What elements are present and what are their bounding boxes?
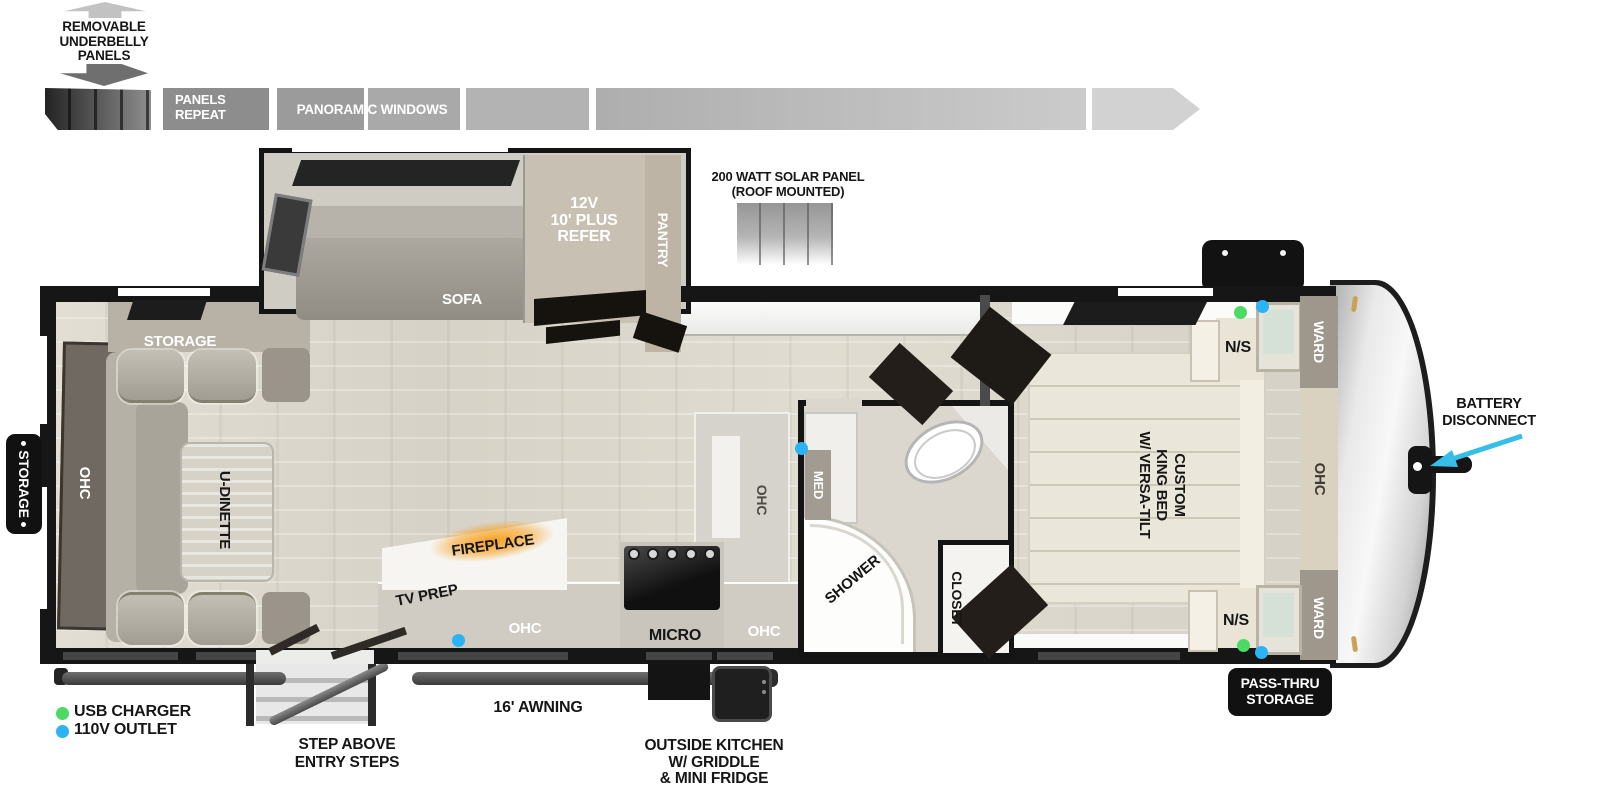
bottom-window-4 (646, 652, 712, 660)
wardrobe-top-glass-pane (1263, 310, 1294, 354)
stove-burner-knobs (628, 548, 716, 560)
sofa-back (300, 206, 535, 242)
arrow-up-icon (64, 2, 146, 18)
battery-disconnect-label: BATTERY DISCONNECT (1434, 396, 1544, 429)
bedroom-top-110v-dot (1256, 300, 1269, 313)
bottom-window-6 (1038, 652, 1180, 660)
legend-usb-dot (56, 707, 69, 720)
bathroom-door-opening (806, 398, 862, 408)
rear-storage-badge-label: STORAGE (16, 444, 32, 524)
dinette-top-window-gap (118, 288, 210, 296)
refrigerator-label: 12V 10' PLUS REFER (523, 196, 645, 246)
bottom-window-3 (398, 652, 568, 660)
bottom-window-1 (63, 652, 178, 660)
dinette-armrest-top (262, 348, 310, 402)
bathroom-110v-outlet-dot (795, 442, 808, 455)
top-wall-front (677, 286, 1336, 302)
propane-cover-dot-right (1280, 250, 1286, 256)
propane-cover (1202, 240, 1304, 292)
legend-110v-dot (56, 725, 69, 738)
bedroom-bottom-usb-dot (1237, 639, 1250, 652)
kitchen-110v-outlet-dot (452, 634, 465, 647)
dinette-cushion-bottom-2 (188, 592, 256, 645)
front-ohc-label: OHC (1311, 449, 1327, 509)
dinette-cushion-bottom-1 (118, 592, 184, 645)
dinette-storage-label: STORAGE (128, 334, 232, 350)
outside-griddle-knob-1 (762, 680, 766, 684)
nightstand-top-label: N/S (1214, 340, 1262, 356)
battery-disconnect-arrow-icon (1420, 428, 1530, 474)
entry-step-rail-left (246, 660, 254, 726)
dinette-cushion-top-1 (118, 350, 184, 403)
nightstand-bottom-label: N/S (1212, 613, 1260, 629)
window-strip-c (466, 88, 589, 130)
dinette-cushion-top-2 (188, 350, 256, 403)
rear-ohc-label: OHC (76, 453, 92, 513)
removable-underbelly-label: REMOVABLE UNDERBELLY PANELS (34, 20, 174, 64)
propane-cover-dot-left (1222, 250, 1228, 256)
dinette-top-valance (127, 300, 207, 320)
rear-window-gap-1 (40, 336, 47, 424)
awning-label: 16' AWNING (478, 700, 598, 716)
kitchen-sink-area (712, 436, 740, 538)
panoramic-windows-label: PANORAMIC WINDOWS (272, 102, 472, 118)
bedroom-bottom-110v-dot (1255, 646, 1268, 659)
rv-floorplan-canvas: REMOVABLE UNDERBELLY PANELS PANELS REPEA… (0, 0, 1600, 788)
solar-panel-label: 200 WATT SOLAR PANEL (ROOF MOUNTED) (698, 170, 878, 199)
sofa-label: SOFA (408, 292, 516, 308)
bedroom-window-valance (1063, 302, 1207, 325)
legend-usb-label: USB CHARGER (74, 704, 214, 720)
king-bed-head-cushion (1240, 360, 1264, 598)
wardrobe-top-label: WARD (1311, 312, 1327, 372)
window-strip-arrow (1092, 88, 1200, 130)
slide-window-valance (292, 160, 520, 186)
slide-window-gap (292, 146, 508, 152)
hall-overhead-cabinets (681, 300, 981, 336)
dinette-label: U-DINETTE (216, 460, 232, 560)
legend-110v-label: 110V OUTLET (74, 722, 214, 738)
pantry-label: PANTRY (655, 205, 671, 275)
panels-repeat-label: PANELS REPEAT (175, 93, 255, 122)
bedroom-top-usb-dot (1234, 306, 1247, 319)
micro-label: MICRO (638, 628, 712, 644)
med-label: MED (810, 463, 826, 507)
closet-label: CLOSET (949, 559, 965, 639)
arrow-down-icon (60, 64, 148, 86)
bottom-window-5 (717, 652, 773, 660)
outside-kitchen-label: OUTSIDE KITCHEN W/ GRIDDLE & MINI FRIDGE (632, 738, 796, 788)
solar-panel-graphic (737, 203, 833, 265)
outside-kitchen-box (648, 662, 710, 700)
kitchen-ohc-island-label: OHC (754, 475, 770, 525)
king-bed-label: CUSTOM KING BED W/ VERSA-TILT (1134, 410, 1188, 560)
pass-thru-storage-label: PASS-THRU STORAGE (1228, 675, 1332, 707)
bedroom-top-window-gap (1118, 288, 1213, 296)
outside-griddle-knob-2 (762, 690, 766, 694)
kitchen-ohc-left-label: OHC (498, 621, 552, 637)
window-strip-long (596, 88, 1086, 130)
bedroom-bottom-wall-band (1014, 634, 1214, 648)
wardrobe-bottom-glass-pane (1263, 593, 1294, 637)
entry-steps-label: STEP ABOVE ENTRY STEPS (262, 736, 432, 772)
outside-griddle (712, 666, 772, 722)
wardrobe-bottom-label: WARD (1311, 588, 1327, 648)
underbelly-panel-graphic (45, 88, 151, 130)
kitchen-ohc-right-label: OHC (736, 624, 792, 640)
